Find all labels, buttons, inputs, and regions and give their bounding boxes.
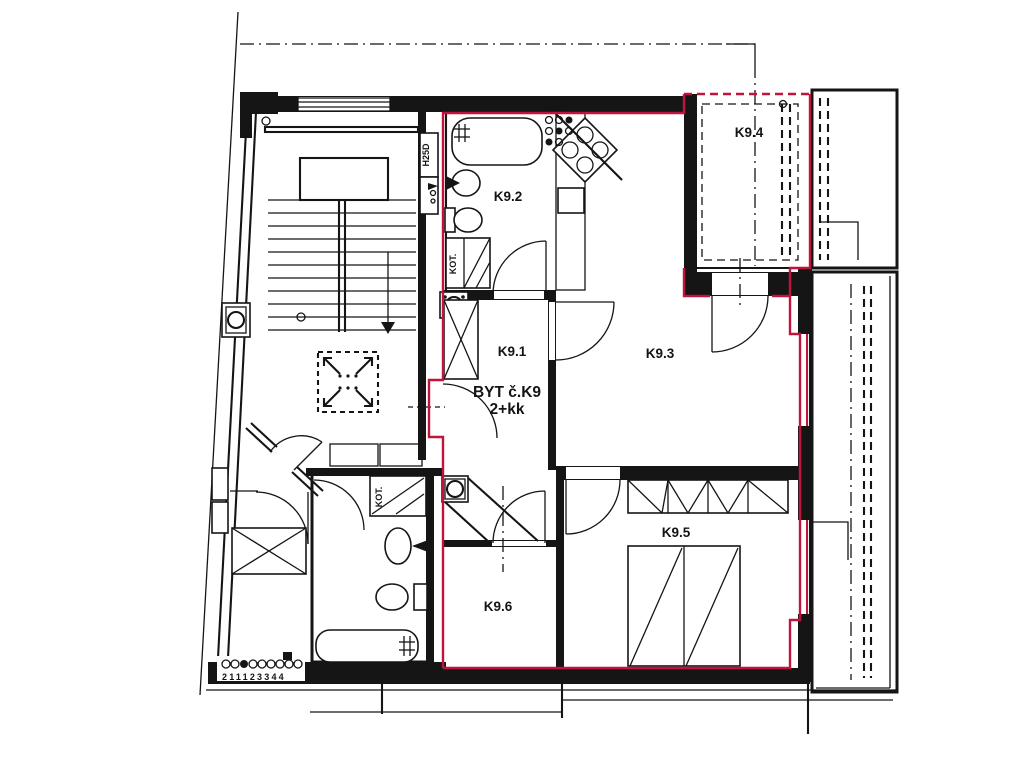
bath-door-arc: [493, 241, 546, 294]
room-label-k96: K9.6: [484, 599, 513, 614]
window: [212, 502, 228, 533]
structural-column: [222, 303, 250, 337]
door-arc: [314, 480, 364, 530]
neighbor-flat: KOT.: [212, 423, 443, 682]
bedroom-k95: [628, 480, 788, 666]
wardrobe-icon: [444, 300, 478, 379]
sink-icon: [446, 170, 480, 196]
stair-top-wall: [265, 127, 418, 132]
boiler-icon: KOT.: [446, 238, 490, 288]
staircase: H25D: [218, 112, 438, 658]
k96-door-arc: [493, 491, 545, 543]
k96-nook: [442, 476, 538, 543]
riser-numbers-bottom: 211123344: [222, 672, 286, 682]
bottom-ledge: [206, 684, 897, 734]
hall-cabinet: [330, 444, 378, 466]
kot-label: KOT.: [374, 487, 384, 508]
h25d-label: H25D: [421, 143, 431, 167]
room-label-k91: K9.1: [498, 344, 527, 359]
bed-icon: [628, 546, 740, 666]
stair-direction-arrow: [381, 322, 395, 334]
boiler-icon: KOT.: [370, 476, 426, 516]
stairwell-eye: [300, 158, 388, 200]
window: [212, 468, 228, 500]
ceiling-opening-symbol: [318, 352, 378, 412]
kitchen: 2111: [543, 102, 622, 290]
stair-window-gap: [298, 97, 390, 111]
riser-numbers-top: 2111: [543, 102, 569, 112]
room-label-k94: K9.4: [735, 125, 764, 140]
room-label-k93: K9.3: [646, 346, 675, 361]
room-label-k92: K9.2: [494, 189, 523, 204]
hall-cabinet: [380, 444, 422, 466]
terrace-left-wall: [684, 94, 697, 280]
room-label-k95: K9.5: [662, 525, 691, 540]
landing-box: [420, 177, 438, 214]
wall-post-circle: [262, 117, 270, 125]
site-corner-mark: [726, 44, 755, 64]
opening-arrows: [324, 358, 372, 406]
bathtub-icon: [316, 630, 424, 667]
stair-steps: [268, 200, 416, 330]
riser-circles-bottom: 211123344: [217, 652, 305, 682]
kitchen-cabinet: [558, 188, 584, 213]
neighbor-terrace-top: [812, 90, 897, 268]
living-door-arc: [556, 302, 614, 360]
hall-k91: [440, 292, 478, 379]
floor-plan-canvas: H25D: [0, 0, 1024, 768]
kot-label: KOT.: [448, 254, 458, 275]
apartment-title: BYT č.K9: [473, 384, 541, 401]
wardrobe-icon: [232, 528, 306, 574]
top-wall-jog: [240, 92, 278, 114]
floor-plan-drawing: H25D: [0, 0, 1024, 768]
toilet-icon: [445, 208, 482, 232]
bottom-wall-right: [443, 668, 810, 684]
stove-icon: [553, 114, 622, 182]
apartment-subtitle: 2+kk: [490, 401, 525, 418]
door-leaf: [294, 442, 322, 470]
toilet-icon: [376, 584, 427, 610]
shaft-hatch: [445, 502, 490, 543]
apartment-boundary-red: [429, 94, 810, 668]
bedroom-door-arc: [566, 480, 620, 534]
wardrobe-icon: [628, 480, 788, 513]
neighbor-bathroom: KOT.: [312, 472, 434, 667]
fan-shaft-icon: [442, 476, 468, 502]
neighbor-terrace-side: [812, 272, 897, 692]
bathtub-icon: [452, 118, 542, 165]
sink-icon: [385, 528, 428, 564]
opening-dots: [338, 374, 357, 389]
